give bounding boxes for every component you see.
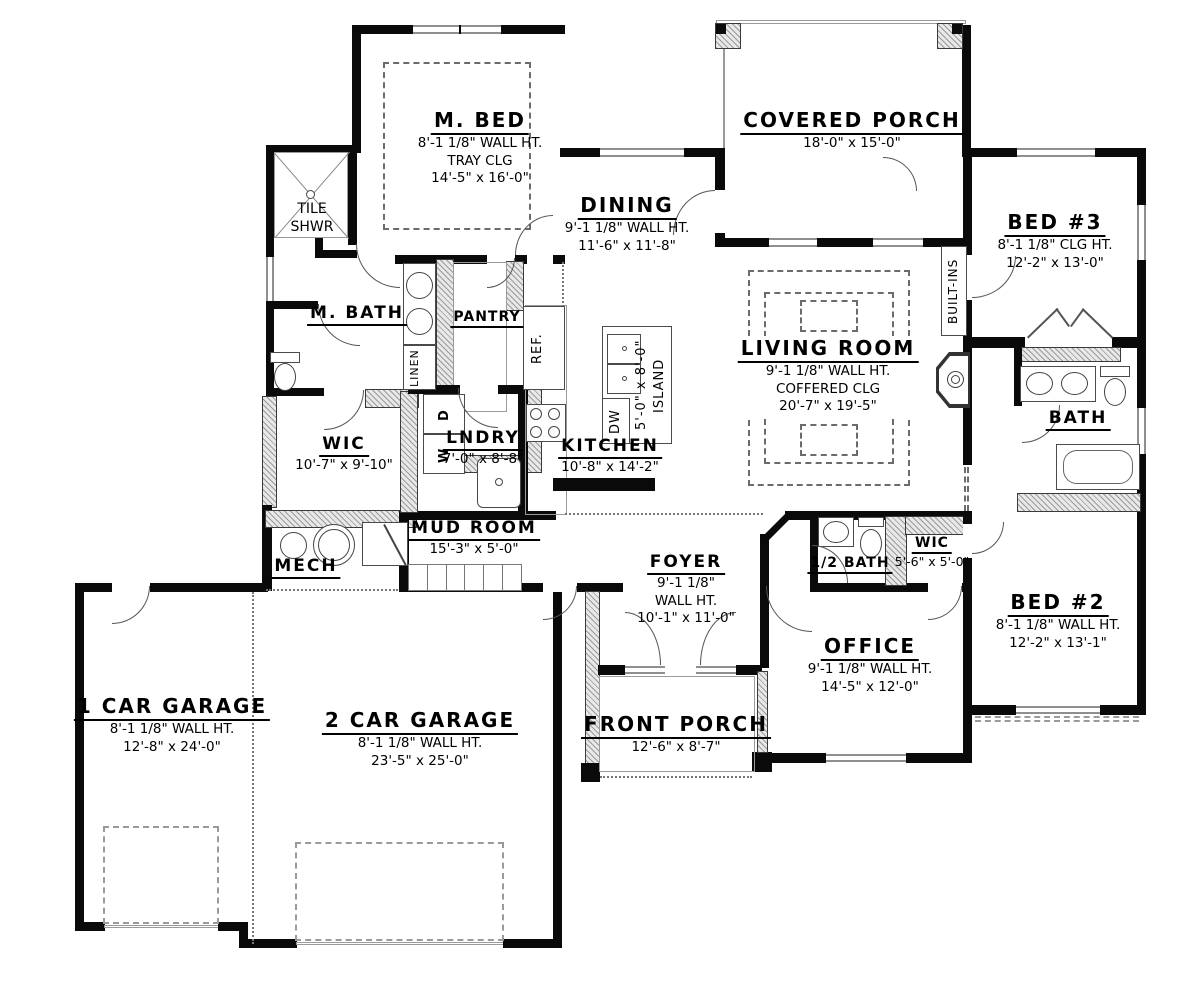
shower-drain-icon xyxy=(306,190,315,199)
sink-icon xyxy=(1026,372,1053,395)
room-label-garage1: 1 CAR GARAGE 8'-1 1/8" WALL HT. 12'-8" x… xyxy=(74,694,270,756)
garage-door-outline xyxy=(103,826,219,924)
wall xyxy=(963,400,972,465)
toilet-icon xyxy=(274,363,296,391)
room-label-bed3: BED #3 8'-1 1/8" CLG HT. 12'-2" x 13'-0" xyxy=(997,210,1112,272)
wall xyxy=(810,583,928,592)
wall-hatched xyxy=(1018,494,1140,511)
door-arc xyxy=(324,390,364,430)
toilet-icon xyxy=(1104,378,1126,406)
room-title: LIVING ROOM xyxy=(738,336,919,363)
burner-icon xyxy=(548,408,560,420)
room-title: WIC xyxy=(319,434,369,457)
door-arc xyxy=(543,586,577,620)
patio-edge xyxy=(975,716,1139,722)
window xyxy=(1017,148,1095,157)
room-title: COVERED PORCH xyxy=(740,108,963,135)
label-dryer: D xyxy=(437,404,452,426)
ceiling-break-line xyxy=(266,589,398,593)
label-island: ISLAND xyxy=(652,342,667,430)
room-title: MUD ROOM xyxy=(408,518,540,541)
mud-room-lockers xyxy=(408,564,522,591)
porch-edge xyxy=(716,20,966,24)
label-built-ins: BUILT-INS xyxy=(946,248,960,334)
room-title: OFFICE xyxy=(821,634,919,661)
wall xyxy=(75,583,84,931)
room-title: M. BATH xyxy=(307,303,407,326)
room-title: FRONT PORCH xyxy=(581,712,771,739)
room-title: PANTRY xyxy=(450,309,523,328)
bifold-door xyxy=(1055,308,1070,327)
wall xyxy=(963,148,972,255)
wall xyxy=(266,388,324,396)
room-label-front-porch: FRONT PORCH 12'-6" x 8'-7" xyxy=(581,712,771,757)
burner-icon xyxy=(530,408,542,420)
room-label-lndry: LNDRY 7'-0" x 8'-8" xyxy=(443,428,524,469)
wall xyxy=(348,145,357,245)
wall xyxy=(598,665,625,675)
door-arc xyxy=(112,586,150,624)
wall-hatched xyxy=(1022,348,1120,361)
wall xyxy=(352,25,361,153)
room-title: KITCHEN xyxy=(558,436,662,459)
sink-icon xyxy=(406,272,433,299)
room-label-m-bath: M. BATH xyxy=(307,303,407,326)
wall-hatched xyxy=(401,392,417,512)
wall xyxy=(150,583,268,592)
room-title: FOYER xyxy=(647,552,725,575)
wall xyxy=(266,301,274,397)
bifold-door xyxy=(1082,308,1114,339)
room-label-garage2: 2 CAR GARAGE 8'-1 1/8" WALL HT. 23'-5" x… xyxy=(322,708,518,770)
room-label-mech: MECH xyxy=(271,556,340,579)
room-label-dining: DINING 9'-1 1/8" WALL HT. 11'-6" x 11'-8… xyxy=(565,193,690,255)
door-arc xyxy=(972,522,1004,554)
room-label-wic2: WIC 5'-6" x 5'-0" xyxy=(895,532,970,570)
room-title: M. BED xyxy=(431,108,529,135)
coffered-ceiling-coffer xyxy=(800,300,858,332)
wall xyxy=(266,145,274,257)
room-label-mud-room: MUD ROOM 15'-3" x 5'-0" xyxy=(408,518,540,559)
bifold-door xyxy=(1027,308,1059,339)
porch-column-cap xyxy=(716,24,726,34)
toilet-tank xyxy=(270,352,300,363)
wall-hatched xyxy=(263,397,276,507)
sink-icon xyxy=(406,308,433,335)
label-island-dims: 5'-0" x 8'-0" xyxy=(634,332,649,438)
label-ref: REF. xyxy=(530,318,545,380)
sink-icon xyxy=(1061,372,1088,395)
room-title: DINING xyxy=(577,193,676,220)
ceiling-break-line xyxy=(565,513,763,517)
room-title: BATH xyxy=(1046,408,1111,431)
label-washer: W xyxy=(437,444,452,466)
door-arc xyxy=(356,244,400,288)
room-title: 2 CAR GARAGE xyxy=(322,708,518,735)
burner-icon xyxy=(530,426,542,438)
sink-icon xyxy=(823,521,849,543)
label-dishwasher: DW xyxy=(608,404,623,440)
room-label-living: LIVING ROOM 9'-1 1/8" WALL HT. COFFERED … xyxy=(738,336,919,416)
room-title: MECH xyxy=(271,556,340,579)
room-title: 1/2 BATH xyxy=(807,555,892,574)
room-label-linen: LINEN xyxy=(408,348,421,388)
door-arc xyxy=(928,586,962,620)
door-arc xyxy=(766,586,812,632)
wall xyxy=(715,238,769,247)
wall xyxy=(963,592,972,763)
room-label-office: OFFICE 9'-1 1/8" WALL HT. 14'-5" x 12'-0… xyxy=(808,634,933,696)
wall xyxy=(577,583,623,592)
porch-edge-dashed xyxy=(600,776,752,780)
room-label-wic-master: WIC 10'-7" x 9'-10" xyxy=(295,434,393,475)
wall xyxy=(817,238,873,247)
room-label-foyer: FOYER 9'-1 1/8" WALL HT. 10'-1" x 11'-0" xyxy=(637,552,735,628)
window xyxy=(1137,205,1146,260)
porch-post xyxy=(581,763,600,782)
wall xyxy=(715,148,725,190)
window xyxy=(600,148,684,157)
porch-column-cap xyxy=(952,24,962,34)
faucet-icon xyxy=(495,478,503,486)
window xyxy=(461,25,501,34)
wall xyxy=(970,337,1025,348)
front-door-sidelite xyxy=(625,666,665,674)
coffered-ceiling-coffer xyxy=(800,424,858,456)
water-softener-icon xyxy=(280,532,307,559)
wall xyxy=(1137,505,1146,715)
toilet-tank xyxy=(858,517,884,527)
garage-door-sill xyxy=(296,942,504,945)
window xyxy=(826,754,906,762)
cased-opening xyxy=(964,467,969,511)
room-label-m-bed: M. BED 8'-1 1/8" WALL HT. TRAY CLG 14'-5… xyxy=(418,108,543,188)
room-label-pantry: PANTRY xyxy=(450,306,523,328)
wall xyxy=(553,592,562,948)
drain-icon xyxy=(622,346,627,351)
wall xyxy=(75,922,105,931)
room-title: WIC xyxy=(912,535,952,554)
room-label-kitchen: KITCHEN 10'-8" x 14'-2" xyxy=(558,436,662,477)
drain-icon xyxy=(622,376,627,381)
room-label-half-bath: 1/2 BATH xyxy=(807,552,892,574)
garage-door-outline xyxy=(295,842,504,941)
toilet-tank xyxy=(1100,366,1130,377)
room-label-bed2: BED #2 8'-1 1/8" WALL HT. 12'-2" x 13'-1… xyxy=(996,590,1121,652)
door-arc xyxy=(883,157,917,191)
window xyxy=(1016,706,1100,714)
window xyxy=(266,257,274,301)
window xyxy=(413,25,459,34)
floor-plan: M. BED 8'-1 1/8" WALL HT. TRAY CLG 14'-5… xyxy=(0,0,1200,987)
garage-door-sill xyxy=(104,925,219,928)
wall xyxy=(1112,337,1143,348)
front-door-sidelite xyxy=(696,666,736,674)
fireplace-flue-icon xyxy=(951,375,960,384)
room-title: BED #3 xyxy=(1004,210,1105,237)
window xyxy=(769,238,817,247)
room-label-bath: BATH xyxy=(1046,408,1111,431)
room-title: LNDRY xyxy=(443,428,523,451)
garage-separation-line xyxy=(252,592,256,944)
wall xyxy=(553,478,655,491)
wall xyxy=(966,705,1016,715)
room-title: 1 CAR GARAGE xyxy=(74,694,270,721)
bathtub-basin xyxy=(1063,450,1133,484)
wall xyxy=(315,250,357,258)
room-title: BED #2 xyxy=(1007,590,1108,617)
wall xyxy=(239,939,297,948)
room-label-covered-porch: COVERED PORCH 18'-0" x 15'-0" xyxy=(740,108,963,153)
room-label-tile-shwr: TILE SHWR xyxy=(291,200,334,236)
window xyxy=(873,238,923,247)
